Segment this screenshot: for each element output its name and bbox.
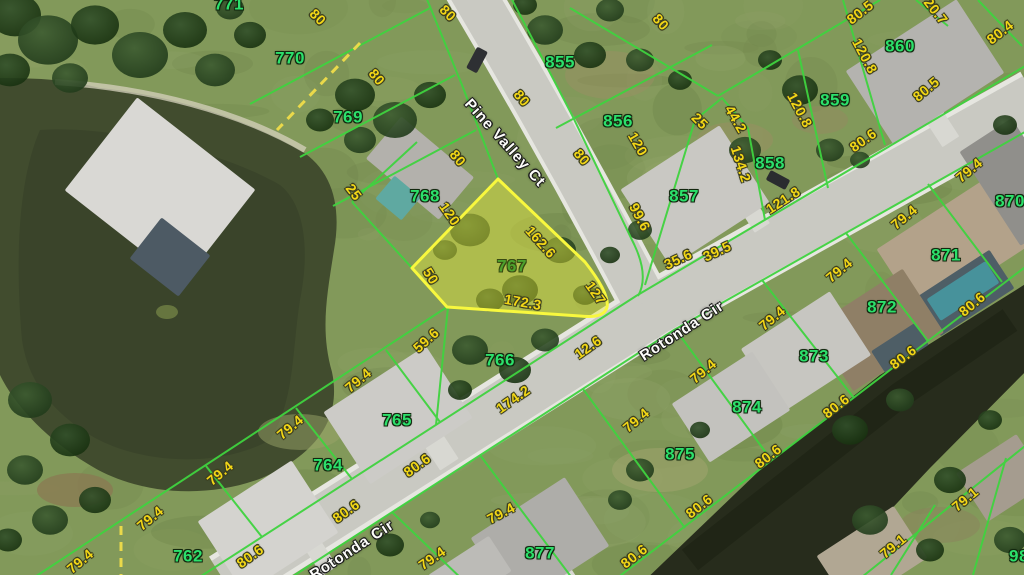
lot-number-label-855[interactable]: 855 <box>545 54 575 71</box>
lot-number-label-872[interactable]: 872 <box>867 299 897 316</box>
lot-number-label-860[interactable]: 860 <box>885 38 915 55</box>
lot-number-label-764[interactable]: 764 <box>313 457 343 474</box>
lot-number-label-874[interactable]: 874 <box>732 399 762 416</box>
lot-number-label-856[interactable]: 856 <box>603 113 633 130</box>
lot-number-label-765[interactable]: 765 <box>382 412 412 429</box>
lot-number-label-768[interactable]: 768 <box>410 188 440 205</box>
lot-number-label-858[interactable]: 858 <box>755 155 785 172</box>
lot-number-label-857[interactable]: 857 <box>669 188 699 205</box>
lot-number-label-769[interactable]: 769 <box>333 109 363 126</box>
lot-number-label-870[interactable]: 870 <box>995 193 1024 210</box>
lot-number-label-762[interactable]: 762 <box>173 548 203 565</box>
lot-number-label-859[interactable]: 859 <box>820 92 850 109</box>
lot-number-label-875[interactable]: 875 <box>665 446 695 463</box>
lake-island <box>156 305 178 319</box>
lot-number-label-771[interactable]: 771 <box>214 0 244 13</box>
parcel-map-canvas[interactable]: 7717707697687677667657647628558568578588… <box>0 0 1024 575</box>
lot-number-label-98[interactable]: 98 <box>1009 548 1024 565</box>
lot-number-label-877[interactable]: 877 <box>525 545 555 562</box>
lot-number-label-871[interactable]: 871 <box>931 247 961 264</box>
lot-number-label-873[interactable]: 873 <box>799 348 829 365</box>
lot-number-label-766[interactable]: 766 <box>485 352 515 369</box>
lot-number-label-770[interactable]: 770 <box>275 50 305 67</box>
lot-number-label-767[interactable]: 767 <box>497 258 527 275</box>
aerial-imagery <box>0 0 1024 575</box>
